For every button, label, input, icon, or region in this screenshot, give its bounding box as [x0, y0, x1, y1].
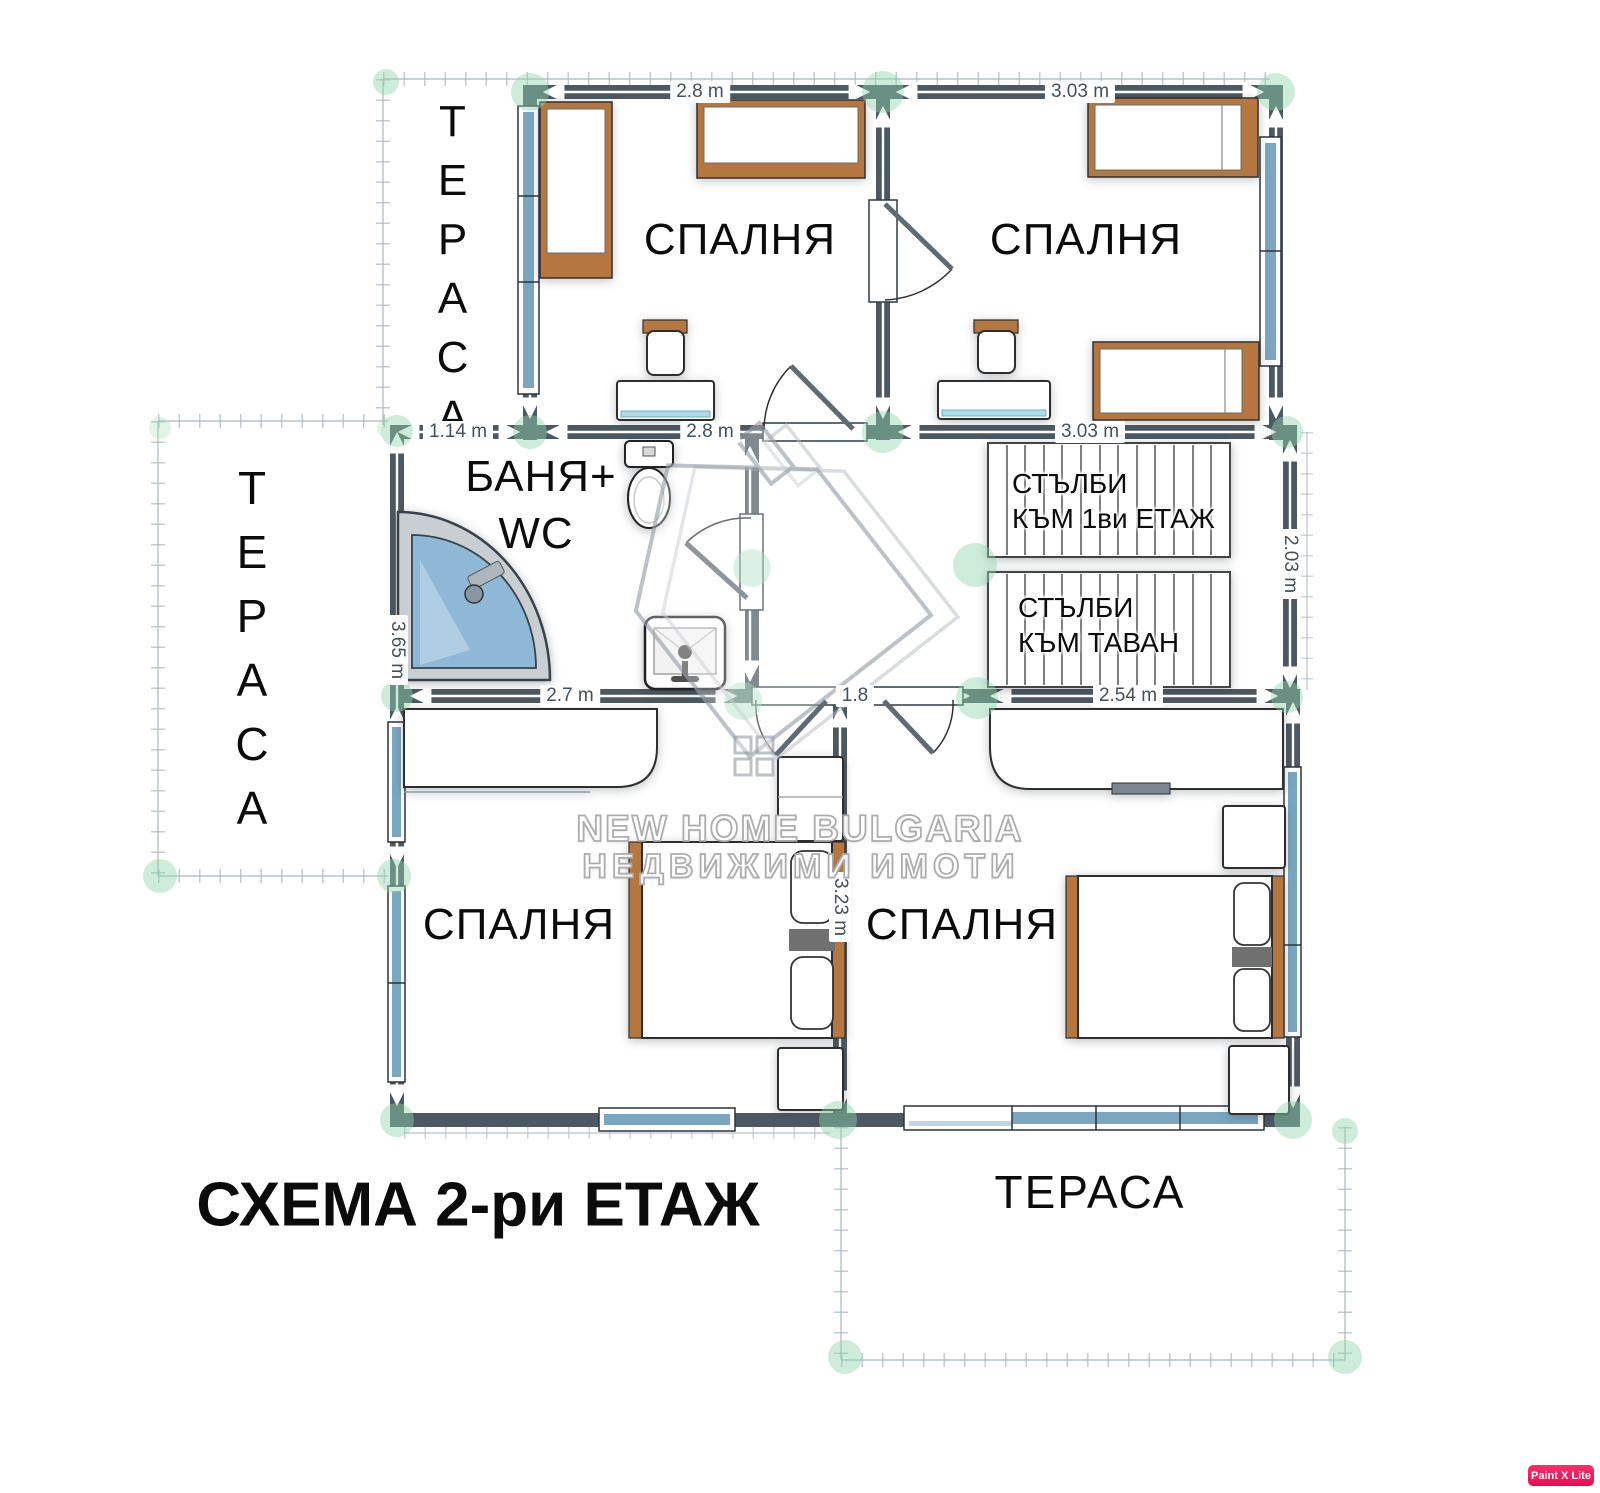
desk	[617, 381, 714, 420]
room-label-bedroom-bottom-right: СПАЛНЯ	[866, 900, 1058, 950]
window-bottom-right-bedroom-bottom	[904, 1106, 1264, 1130]
window-bottom-left-bedroom-lower	[388, 886, 405, 1082]
dim-mid-bedroom-right-width: 3.03 m	[1055, 421, 1125, 443]
door-bottom-right-bedroom	[867, 687, 963, 753]
page-title: СХЕМА 2-ри ЕТАЖ	[196, 1170, 759, 1241]
chair	[974, 320, 1018, 373]
bed-vertical	[540, 102, 612, 278]
room-label-bedroom-bottom-left: СПАЛНЯ	[423, 900, 615, 950]
bed-lower	[1093, 342, 1259, 420]
terrace-label-top-left: ТЕРАСА	[427, 97, 477, 451]
window-bottom-left-bedroom-upper	[388, 722, 405, 842]
nightstand	[778, 1048, 843, 1110]
window-bottom-left-bedroom-bottom	[599, 1108, 735, 1131]
stairs-label-first-floor: СТЪЛБИ КЪМ 1ви ЕТАЖ	[1012, 466, 1215, 536]
nightstand	[1223, 806, 1285, 868]
stairs-label-first-floor-line2: КЪМ 1ви ЕТАЖ	[1012, 501, 1215, 536]
dim-hall-width: 1.8	[836, 685, 874, 707]
dim-stairs-width: 2.54 m	[1093, 685, 1163, 707]
terrace-label-left: ТЕРАСА	[225, 462, 279, 846]
room-label-bedroom-top-right: СПАЛНЯ	[990, 215, 1182, 265]
window-bottom-right-bedroom-side	[1284, 767, 1301, 1037]
chair	[643, 320, 687, 375]
room-label-bathroom-line2: WC	[498, 509, 573, 559]
window-top-left-bedroom	[518, 106, 539, 394]
bed-upper	[1088, 98, 1258, 177]
dim-top-bedroom-left-width: 2.8 m	[670, 81, 730, 103]
paint-x-lite-badge: Paint X Lite	[1528, 1465, 1594, 1486]
wardrobe	[697, 100, 865, 178]
stairs-label-attic-line2: КЪМ ТАВАН	[1018, 625, 1179, 660]
nightstand	[1229, 1046, 1289, 1114]
watermark-line1: NEW HOME BULGARIA	[576, 808, 1023, 850]
dim-stairs-height: 2.03 m	[1279, 529, 1301, 599]
window-top-right-bedroom	[1260, 137, 1281, 366]
dim-bathroom-height: 3.65 m	[386, 615, 408, 685]
desk-counter	[404, 709, 657, 792]
double-bed	[1066, 876, 1284, 1038]
desk	[938, 381, 1050, 419]
stairs-label-attic-line1: СТЪЛБИ	[1018, 590, 1179, 625]
terrace-label-bottom-right: ТЕРАСА	[995, 1165, 1186, 1219]
door-between-top-bedrooms	[869, 200, 952, 302]
stairs-label-first-floor-line1: СТЪЛБИ	[1012, 466, 1215, 501]
stairs-label-attic: СТЪЛБИ КЪМ ТАВАН	[1018, 590, 1179, 660]
watermark-line2: НЕДВИЖИМИ ИМОТИ	[582, 848, 1019, 887]
floor-plan-canvas: СПАЛНЯ СПАЛНЯ СПАЛНЯ СПАЛНЯ БАНЯ+ WC СТЪ…	[0, 0, 1600, 1493]
dim-mid-bedroom-left-width: 2.8 m	[680, 421, 740, 443]
room-label-bedroom-top-left: СПАЛНЯ	[644, 215, 836, 265]
desk-counter	[990, 709, 1283, 794]
dim-top-bedroom-right-width: 3.03 m	[1045, 81, 1115, 103]
room-label-bathroom-line1: БАНЯ+	[465, 452, 617, 502]
dim-bathroom-width: 2.7 m	[540, 685, 600, 707]
dim-terrace-strip-width: 1.14 m	[423, 421, 493, 443]
